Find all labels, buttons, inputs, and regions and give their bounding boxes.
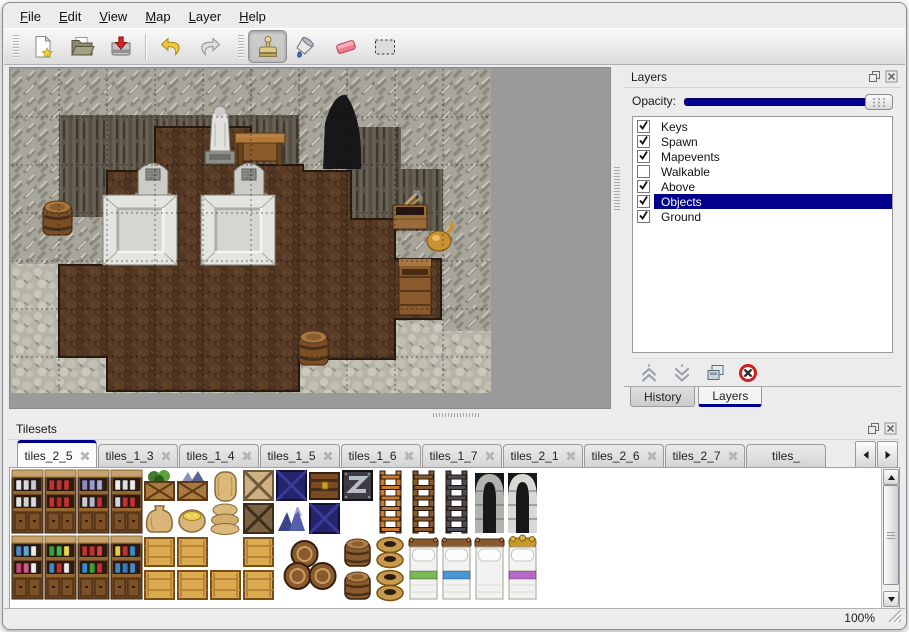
tile-chest xyxy=(310,473,339,499)
tile-bed xyxy=(509,535,536,599)
tile-crate-yellow xyxy=(244,538,273,566)
tile-sack xyxy=(147,506,173,532)
splitter-grip-icon xyxy=(614,167,620,211)
dock-tabs: HistoryLayers xyxy=(630,387,765,409)
opacity-slider-handle[interactable] xyxy=(865,94,893,110)
layer-visible-checkbox[interactable] xyxy=(637,210,650,223)
app-window: FileEditViewMapLayerHelp Layers Opacity:… xyxy=(2,2,907,630)
tile-shelf xyxy=(111,536,142,599)
tilesets-dock-title: Tilesets xyxy=(9,419,900,440)
dock-tab-layers[interactable]: Layers xyxy=(698,387,762,407)
opacity-label: Opacity: xyxy=(632,94,676,108)
layer-visible-checkbox[interactable] xyxy=(637,195,650,208)
tileset-vertical-scrollbar[interactable] xyxy=(881,468,899,608)
close-tab-icon[interactable] xyxy=(404,451,414,461)
tileset-tab-tiles_2_7[interactable]: tiles_2_7 xyxy=(665,444,745,467)
tileset-tab-tiles_1_5[interactable]: tiles_1_5 xyxy=(260,444,340,467)
tab-label: tiles_2_7 xyxy=(672,449,720,463)
tileset-content[interactable] xyxy=(9,467,900,609)
tile-barrel xyxy=(345,572,370,599)
tile-crate-yellow xyxy=(145,538,174,566)
tab-label: tiles_1_7 xyxy=(429,449,477,463)
close-tab-icon[interactable] xyxy=(566,451,576,461)
tile-stone-arch xyxy=(508,473,537,533)
tile-shelf xyxy=(12,536,43,599)
layer-list[interactable]: KeysSpawnMapeventsWalkableAboveObjectsGr… xyxy=(632,116,893,353)
tile-pot-stack xyxy=(377,571,403,601)
layer-name: Objects xyxy=(658,195,705,209)
tileset-tab-tiles_1_6[interactable]: tiles_1_6 xyxy=(341,444,421,467)
layer-visible-checkbox[interactable] xyxy=(637,180,650,193)
close-tab-icon[interactable] xyxy=(728,451,738,461)
tab-scroll-buttons xyxy=(855,441,898,468)
close-panel-icon[interactable] xyxy=(885,70,898,86)
layers-dock-title-label: Layers xyxy=(631,70,667,84)
tile-sack-open xyxy=(179,510,205,532)
tileset-tabs: tiles_2_5tiles_1_3tiles_1_4tiles_1_5tile… xyxy=(17,440,854,467)
tile-barrel xyxy=(345,539,370,566)
tile-crate-plant xyxy=(145,470,174,500)
duplicate-layer-icon xyxy=(704,362,726,384)
layer-visible-checkbox[interactable] xyxy=(637,135,650,148)
status-bar: 100% xyxy=(4,608,905,628)
tileset-tab-tiles_1_3[interactable]: tiles_1_3 xyxy=(98,444,178,467)
save-icon xyxy=(108,34,134,60)
map-gravestone xyxy=(231,163,267,199)
close-tab-icon[interactable] xyxy=(323,451,333,461)
layer-row-above[interactable]: Above xyxy=(633,179,892,194)
map-barrel xyxy=(43,201,72,235)
map-cabinet xyxy=(399,259,431,315)
tab-label: tiles_1_3 xyxy=(105,449,153,463)
delete-layer-icon xyxy=(737,362,759,384)
layer-name: Spawn xyxy=(658,135,701,149)
layer-name: Walkable xyxy=(658,165,713,179)
menu-map[interactable]: Map xyxy=(136,7,179,26)
resize-grip-icon[interactable] xyxy=(886,607,902,626)
undo-icon xyxy=(158,34,184,60)
layer-visible-checkbox[interactable] xyxy=(637,150,650,163)
scroll-down-button[interactable] xyxy=(883,591,899,607)
splitter-grip-icon xyxy=(433,413,481,417)
vertical-splitter[interactable] xyxy=(612,67,623,409)
tile-crate-yellow xyxy=(178,538,207,566)
tab-label: tiles_1_6 xyxy=(348,449,396,463)
tile-crate-x xyxy=(244,504,273,533)
layers-dock: Layers Opacity: KeysSpawnMapeventsWalkab… xyxy=(624,67,901,409)
stamp-icon xyxy=(255,34,281,60)
layer-visible-checkbox[interactable] xyxy=(637,165,650,178)
tile-crate-ore xyxy=(178,471,207,500)
tile-ladder xyxy=(380,471,401,533)
redo-icon xyxy=(197,34,223,60)
map-canvas-holder xyxy=(11,69,491,398)
layer-name: Mapevents xyxy=(658,150,723,164)
map-platform xyxy=(103,195,177,265)
tileset-tab-tiles_2_6[interactable]: tiles_2_6 xyxy=(584,444,664,467)
tileset-canvas[interactable] xyxy=(10,468,870,607)
menu-file[interactable]: File xyxy=(11,7,50,26)
map-viewport[interactable] xyxy=(9,67,611,409)
layer-row-spawn[interactable]: Spawn xyxy=(633,134,892,149)
tile-ladder xyxy=(446,471,467,533)
tab-label: tiles_2_6 xyxy=(591,449,639,463)
map-table xyxy=(235,133,285,165)
map-platform xyxy=(201,195,275,265)
close-tab-icon[interactable] xyxy=(80,451,90,461)
redo-button[interactable] xyxy=(190,30,229,63)
map-canvas[interactable] xyxy=(11,69,491,393)
layer-buttons-row xyxy=(632,358,893,387)
tile-shelf xyxy=(78,536,109,599)
fill-icon xyxy=(294,34,320,60)
tile-crate-yellow xyxy=(211,571,240,599)
toolbar-grip-icon xyxy=(13,35,19,59)
opacity-slider-track xyxy=(684,98,891,106)
tile-barrel-cluster xyxy=(285,541,336,589)
select-rect-icon xyxy=(372,34,398,60)
menu-edit[interactable]: Edit xyxy=(50,7,90,26)
menu-help[interactable]: Help xyxy=(230,7,275,26)
new-file-icon xyxy=(30,34,56,60)
toolbar-separator xyxy=(145,34,146,60)
tile-crate-yellow xyxy=(244,571,273,599)
tile-shelf xyxy=(45,536,76,599)
scrollbar-thumb[interactable] xyxy=(883,485,899,585)
layer-name: Ground xyxy=(658,210,704,224)
tab-label: tiles_ xyxy=(772,449,800,463)
layer-row-ground[interactable]: Ground xyxy=(633,209,892,224)
tile-shelf xyxy=(78,470,109,533)
toolbar xyxy=(4,28,905,65)
tile-bed xyxy=(409,538,438,599)
horizontal-splitter[interactable] xyxy=(9,410,900,418)
layer-name: Keys xyxy=(658,120,691,134)
tile-crate-yellow xyxy=(178,571,207,599)
tile-crate-blue xyxy=(277,471,306,500)
tileset-tab-tiles_1_4[interactable]: tiles_1_4 xyxy=(179,444,259,467)
layers-dock-title: Layers xyxy=(624,67,901,88)
select-rect-button[interactable] xyxy=(365,30,404,63)
lower-layer-icon xyxy=(671,362,693,384)
tileset-tab-tiles[interactable]: tiles_ xyxy=(746,444,826,467)
scroll-tabs-right-button[interactable] xyxy=(877,441,898,468)
tile-ore-blue xyxy=(278,507,305,531)
tab-label: tiles_2_5 xyxy=(24,449,72,463)
raise-layer-button[interactable] xyxy=(637,361,661,385)
tile-shelf xyxy=(111,470,142,533)
zoom-level: 100% xyxy=(844,611,875,625)
tile-crate-yellow xyxy=(145,571,174,599)
tileset-tab-tiles_1_7[interactable]: tiles_1_7 xyxy=(422,444,502,467)
menu-bar: FileEditViewMapLayerHelp xyxy=(11,6,275,27)
delete-layer-button[interactable] xyxy=(736,361,760,385)
close-tab-icon[interactable] xyxy=(242,451,252,461)
save-button[interactable] xyxy=(101,30,140,63)
layer-row-objects[interactable]: Objects xyxy=(633,194,892,209)
float-panel-icon[interactable] xyxy=(867,422,880,438)
duplicate-layer-button[interactable] xyxy=(703,361,727,385)
tileset-tab-tiles_2_5[interactable]: tiles_2_5 xyxy=(17,440,97,467)
close-tab-icon[interactable] xyxy=(647,451,657,461)
tile-stone-arch xyxy=(475,473,504,533)
close-tab-icon[interactable] xyxy=(161,451,171,461)
map-gravestone xyxy=(135,163,171,199)
tile-crate-blue xyxy=(310,504,339,533)
eraser-button[interactable] xyxy=(326,30,365,63)
open-button[interactable] xyxy=(62,30,101,63)
tilesets-dock-title-label: Tilesets xyxy=(16,422,57,436)
layer-name: Above xyxy=(658,180,698,194)
tile-bed xyxy=(475,538,504,599)
tileset-tab-tiles_2_1[interactable]: tiles_2_1 xyxy=(503,444,583,467)
layer-row-mapevents[interactable]: Mapevents xyxy=(633,149,892,164)
layer-visible-checkbox[interactable] xyxy=(637,120,650,133)
opacity-slider[interactable] xyxy=(684,93,893,109)
stamp-button[interactable] xyxy=(248,30,287,63)
toolbar-grip-icon xyxy=(238,35,244,59)
tile-ladder xyxy=(413,471,434,533)
undo-button[interactable] xyxy=(151,30,190,63)
raise-layer-icon xyxy=(638,362,660,384)
tile-shelf xyxy=(12,470,43,533)
tile-bed xyxy=(442,538,471,599)
scroll-up-button[interactable] xyxy=(883,469,899,485)
new-file-button[interactable] xyxy=(23,30,62,63)
tile-crate-x xyxy=(244,471,273,500)
float-panel-icon[interactable] xyxy=(868,70,881,86)
layer-row-keys[interactable]: Keys xyxy=(633,119,892,134)
scrollbar-grip-icon xyxy=(887,532,895,540)
lower-layer-button[interactable] xyxy=(670,361,694,385)
tab-label: tiles_2_1 xyxy=(510,449,558,463)
map-barrel xyxy=(299,331,328,365)
tile-sack-tall xyxy=(215,472,236,501)
dock-tab-history[interactable]: History xyxy=(630,387,695,407)
scroll-tabs-left-button[interactable] xyxy=(855,441,876,468)
tile-pot-stack xyxy=(377,538,403,568)
tilesets-dock: Tilesets tiles_2_5tiles_1_3tiles_1_4tile… xyxy=(9,419,900,609)
tile-shelf xyxy=(45,470,76,533)
tile-sack-stack xyxy=(211,504,239,535)
tab-label: tiles_1_4 xyxy=(186,449,234,463)
tile-crate-metal xyxy=(343,471,372,500)
close-tab-icon[interactable] xyxy=(485,451,495,461)
layer-row-walkable[interactable]: Walkable xyxy=(633,164,892,179)
tileset-canvas-holder xyxy=(10,468,870,609)
opacity-row: Opacity: xyxy=(632,92,893,110)
menu-layer[interactable]: Layer xyxy=(180,7,231,26)
fill-button[interactable] xyxy=(287,30,326,63)
tab-label: tiles_1_5 xyxy=(267,449,315,463)
menu-view[interactable]: View xyxy=(90,7,136,26)
close-panel-icon[interactable] xyxy=(884,422,897,438)
open-icon xyxy=(69,34,95,60)
eraser-icon xyxy=(333,34,359,60)
